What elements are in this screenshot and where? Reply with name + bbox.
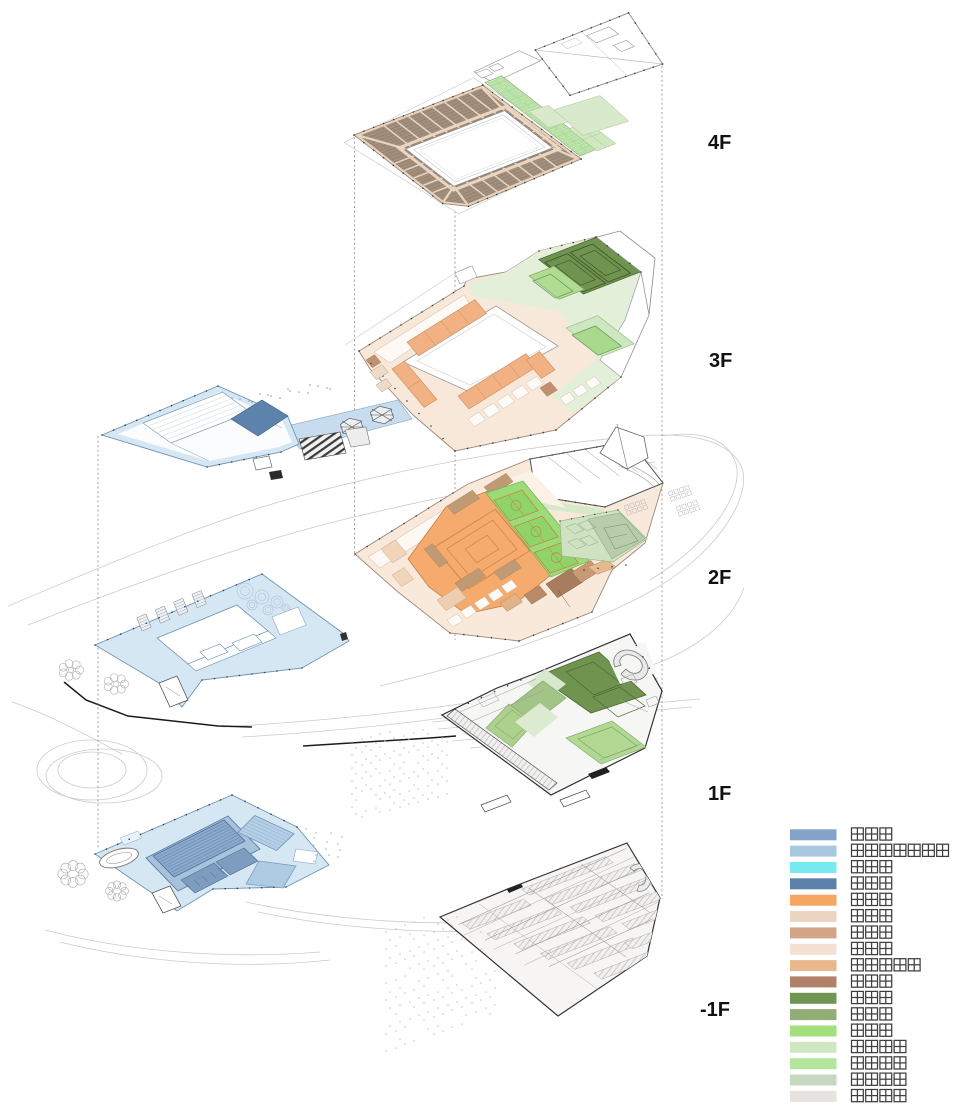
svg-text:3F: 3F <box>709 350 732 372</box>
svg-text:1F: 1F <box>708 783 731 805</box>
svg-text:4F: 4F <box>708 132 731 154</box>
svg-text:-1F: -1F <box>700 999 730 1021</box>
svg-text:2F: 2F <box>708 567 731 589</box>
